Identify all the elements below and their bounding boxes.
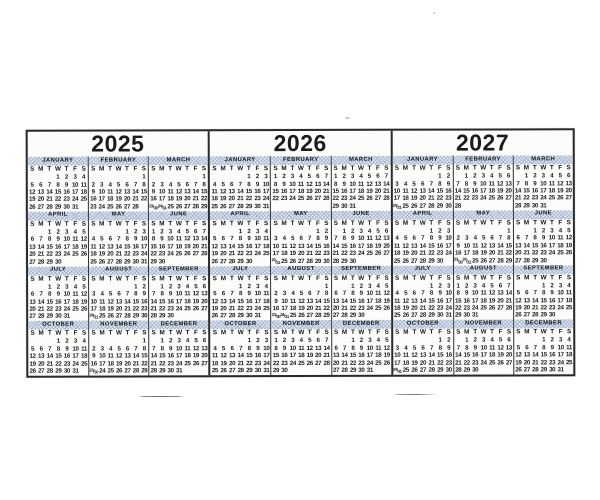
date-cell: 26 — [114, 204, 122, 210]
date-cell: 16 — [436, 298, 445, 304]
date-cell: 25 — [374, 306, 382, 312]
date-cell: 4 — [71, 229, 80, 235]
date-cell: 10 — [392, 189, 401, 195]
date-cell: 22 — [54, 361, 63, 367]
weekday-label: W — [479, 166, 487, 172]
weekday-label: T — [166, 221, 174, 227]
date-cell: 24 — [539, 196, 547, 202]
date-cell: 28 — [149, 314, 157, 320]
weekday-label: S — [514, 220, 522, 226]
date-cell: 3 — [166, 229, 174, 235]
date-cell: 27 — [123, 369, 131, 375]
date-cell: 2 — [462, 283, 470, 289]
date-cell: 17 — [393, 360, 402, 366]
date-cell: 24/31 — [158, 204, 167, 210]
month-name-label: SEPTEMBER — [149, 266, 208, 275]
date-cell: 29 — [45, 314, 54, 320]
date-cell: 6 — [115, 292, 123, 298]
date-cell: 2 — [454, 236, 463, 242]
date-cell: 12 — [410, 189, 419, 195]
date-cell: 8 — [427, 236, 436, 242]
date-cell: 14 — [522, 243, 530, 249]
date-cell: 20 — [191, 244, 199, 250]
date-cell: 22 — [522, 196, 530, 202]
date-cell: 8 — [331, 181, 339, 187]
date-cell: 27 — [227, 204, 236, 210]
weekday-label: T — [487, 166, 495, 172]
date-cell: 21 — [322, 353, 330, 359]
date-cell: 22 — [123, 252, 131, 258]
date-cell: 12 — [410, 353, 419, 359]
weekday-label: M — [522, 165, 530, 171]
month-april-2027: APRILSMTWTFS1234567891011121314151617181… — [393, 210, 453, 265]
date-cell: 9 — [54, 292, 63, 298]
date-cell: 15 — [435, 189, 444, 195]
date-cell: 12 — [514, 353, 522, 359]
date-cell: 18 — [80, 354, 89, 360]
date-cell: 11 — [79, 182, 88, 188]
date-cell: 11 — [479, 291, 487, 297]
weekday-label: M — [37, 331, 46, 337]
date-cell: 9 — [158, 237, 166, 243]
month-name-label: JUNE — [149, 211, 208, 220]
month-name-label: JANUARY — [392, 156, 452, 165]
date-cell: 30 — [280, 368, 288, 374]
date-cell: 12 — [288, 244, 296, 250]
date-cell: 11 — [297, 346, 305, 352]
date-cell: 3 — [97, 182, 105, 188]
date-cell: 23 — [62, 197, 71, 203]
date-cell: 4 — [297, 338, 305, 344]
date-cell: 25 — [262, 251, 271, 257]
date-grid: 1234567891011121314151617181920212223242… — [28, 174, 88, 211]
date-cell: 25 — [166, 204, 174, 210]
date-cell: 2 — [471, 338, 479, 344]
weekday-label: S — [28, 331, 37, 337]
weekday-label: S — [140, 221, 148, 227]
date-cell: 18 — [297, 189, 305, 195]
year-label: 2027 — [392, 130, 572, 155]
month-november-2027: NOVEMBERSMTWTFS1234567891011121314151617… — [453, 320, 513, 375]
weekday-label: S — [28, 167, 37, 173]
month-june-2026: JUNESMTWTFS12345678910111213141516171819… — [330, 211, 390, 266]
weekday-label: W — [539, 275, 547, 281]
date-cell: 26 — [80, 252, 89, 258]
weekday-label: M — [523, 330, 531, 336]
date-cell: 12 — [114, 189, 122, 195]
date-cell: 12 — [488, 291, 496, 297]
date-cell: 15 — [158, 299, 166, 305]
date-cell: 1 — [54, 339, 63, 345]
date-cell: 5 — [479, 236, 487, 242]
date-cell: 17 — [289, 353, 297, 359]
date-cell: 16 — [245, 299, 254, 305]
date-cell: 25 — [565, 360, 573, 366]
date-cell: 29 — [245, 368, 254, 374]
date-cell: 7 — [227, 236, 236, 242]
date-cell: 3 — [539, 173, 547, 179]
date-cell: 21 — [37, 252, 46, 258]
weekday-label: T — [470, 166, 478, 172]
weekday-label: W — [114, 221, 122, 227]
date-cell: 17 — [556, 353, 564, 359]
weekday-label: T — [531, 330, 539, 336]
date-cell: 20 — [418, 196, 427, 202]
date-cell: 15 — [200, 189, 208, 195]
date-cell: 22 — [462, 360, 470, 366]
date-cell: 14 — [531, 298, 539, 304]
date-cell: 16 — [539, 243, 547, 249]
date-cell: 2 — [89, 182, 97, 188]
weekday-label: M — [280, 330, 288, 336]
date-cell: 26 — [556, 196, 564, 202]
date-cell: 20 — [228, 361, 237, 367]
weekday-label: S — [200, 331, 208, 337]
date-cell: 17 — [548, 243, 556, 249]
date-cell: 31 — [262, 204, 271, 210]
weekday-label: F — [191, 166, 199, 172]
date-cell: 1 — [123, 229, 131, 235]
weekday-label: F — [496, 275, 504, 281]
date-cell: 25 — [402, 368, 411, 374]
weekday-label: S — [444, 220, 453, 226]
weekday-label: F — [132, 331, 140, 337]
month-may-2026: MAYSMTWTFS123456789101112131415161718192… — [270, 211, 330, 266]
weekday-label: T — [305, 330, 313, 336]
date-cell: 5 — [297, 291, 305, 297]
weekday-label: S — [89, 221, 97, 227]
weekday-label: M — [340, 166, 348, 172]
date-cell: 13 — [183, 189, 191, 195]
date-cell: 20 — [410, 306, 419, 312]
date-cell: 11 — [280, 244, 288, 250]
date-cell: 5 — [115, 346, 123, 352]
weekday-label: M — [522, 220, 530, 226]
date-cell: 19 — [219, 361, 228, 367]
date-cell: 7 — [191, 182, 199, 188]
date-cell: 18 — [89, 252, 97, 258]
date-cell: 8 — [54, 346, 63, 352]
date-cell: 14 — [340, 353, 348, 359]
date-cell: 11 — [262, 291, 271, 297]
date-grid: 1234567891011121314151617181920212223242… — [28, 229, 88, 266]
date-cell: 25 — [210, 204, 219, 210]
date-cell: 14 — [45, 190, 54, 196]
weekday-label: F — [496, 220, 504, 226]
folded-date-bottom: 31 — [162, 205, 166, 210]
date-cell: 10 — [253, 236, 262, 242]
date-cell: 8 — [462, 181, 470, 187]
weekday-label: T — [427, 220, 436, 226]
date-cell: 18 — [210, 197, 219, 203]
date-cell: 2 — [245, 229, 254, 235]
date-cell: 21 — [228, 306, 237, 312]
date-cell: 13 — [123, 189, 131, 195]
date-cell: 16 — [245, 244, 254, 250]
date-cell: 17 — [479, 353, 487, 359]
date-cell: 9 — [444, 345, 453, 351]
date-cell: 11 — [183, 346, 191, 352]
date-cell: 19 — [565, 243, 573, 249]
weekday-label: S — [211, 331, 220, 337]
date-cell: 25 — [487, 196, 495, 202]
date-cell: 11 — [374, 346, 382, 352]
date-cell: 6 — [505, 338, 513, 344]
date-cell: 14 — [114, 244, 122, 250]
date-cell: 1 — [45, 230, 54, 236]
date-cell: 12 — [80, 292, 89, 298]
date-cell: 25 — [183, 361, 191, 367]
weekday-label: T — [45, 276, 54, 282]
date-cell: 11 — [71, 237, 80, 243]
date-cell: 2 — [444, 338, 453, 344]
date-cell: 30 — [140, 314, 148, 320]
folded-date-top: 23 — [89, 368, 93, 373]
date-cell: 24 — [366, 361, 374, 367]
date-cell: 14 — [123, 299, 131, 305]
date-cell: 18 — [488, 353, 496, 359]
date-cell: 6 — [297, 236, 305, 242]
weekday-label: T — [488, 275, 496, 281]
date-cell: 16 — [140, 299, 148, 305]
date-cell: 14 — [200, 237, 208, 243]
date-cell: 6 — [514, 236, 522, 242]
date-cell: 23 — [89, 204, 97, 210]
date-cell: 12 — [564, 236, 572, 242]
date-cell: 3 — [462, 236, 471, 242]
date-cell: 10 — [548, 236, 556, 242]
date-cell: 6 — [28, 292, 37, 298]
weekday-header: SMTWTFS — [211, 329, 271, 338]
date-cell: 6 — [488, 236, 496, 242]
weekday-label: S — [444, 166, 453, 172]
weekday-label: W — [357, 330, 365, 336]
date-cell: 29 — [140, 369, 148, 375]
date-cell: 11 — [488, 345, 496, 351]
folded-date-top: 24 — [271, 258, 275, 263]
date-cell: 3 — [98, 346, 106, 352]
date-cell: 13 — [419, 353, 428, 359]
weekday-label: S — [149, 331, 157, 337]
weekday-label: S — [322, 330, 330, 336]
date-cell: 13 — [219, 244, 228, 250]
weekday-label: W — [54, 167, 63, 173]
date-cell: 11 — [565, 345, 573, 351]
date-grid: 1234567891011121314151617181920212223242… — [331, 228, 390, 265]
date-cell: 11 — [547, 181, 555, 187]
date-cell: 4 — [262, 284, 271, 290]
date-cell: 8 — [236, 236, 245, 242]
date-cell: 23 — [436, 306, 445, 312]
date-cell: 8 — [131, 291, 139, 297]
date-cell: 27 — [200, 306, 208, 312]
date-cell: 6 — [106, 237, 114, 243]
date-cell: 12 — [382, 346, 390, 352]
weekday-label: M — [219, 221, 228, 227]
date-cell: 17 — [366, 353, 374, 359]
date-cell: 18 — [106, 197, 114, 203]
weekday-label: S — [210, 276, 219, 282]
weekday-label: M — [462, 330, 470, 336]
date-cell: 15 — [531, 243, 539, 249]
date-cell: 9 — [444, 181, 453, 187]
month-name-label: AUGUST — [89, 266, 148, 275]
date-cell: 30 — [357, 313, 365, 319]
date-cell: 28 — [454, 368, 462, 374]
date-cell: 4 — [106, 182, 114, 188]
month-march-2026: MARCHSMTWTFS1234567891011121314151617181… — [330, 156, 390, 211]
weekday-label: S — [454, 166, 462, 172]
date-cell: 15 — [454, 298, 462, 304]
weekday-label: F — [556, 165, 564, 171]
date-cell: 9 — [357, 291, 365, 297]
date-cell: 20 — [419, 360, 428, 366]
date-cell: 11 — [393, 298, 402, 304]
date-cell: 2 — [539, 228, 547, 234]
date-cell: 9 — [539, 236, 547, 242]
weekday-label: S — [149, 276, 157, 282]
date-cell: 6 — [332, 291, 340, 297]
date-cell: 21 — [427, 196, 436, 202]
date-cell: 1 — [427, 283, 436, 289]
weekday-label: F — [313, 166, 321, 172]
date-cell: 5 — [192, 284, 200, 290]
month-name-label: NOVEMBER — [272, 320, 331, 329]
date-cell: 7 — [236, 182, 245, 188]
date-cell: 16 — [131, 244, 139, 250]
date-cell: 9 — [89, 354, 98, 360]
date-cell: 9 — [149, 189, 158, 195]
date-cell: 19 — [479, 251, 487, 257]
date-cell: 30 — [357, 368, 365, 374]
weekday-label: S — [79, 221, 88, 227]
weekday-label: S — [332, 275, 340, 281]
date-cell: 28 — [314, 313, 322, 319]
date-cell: 14 — [227, 244, 236, 250]
date-cell: 4 — [166, 182, 174, 188]
date-cell: 29 — [436, 368, 445, 374]
date-cell: 16 — [89, 361, 98, 367]
date-cell: 14 — [322, 346, 330, 352]
date-cell: 2 — [357, 283, 365, 289]
date-cell: 4 — [374, 338, 382, 344]
date-cell: 14 — [427, 353, 436, 359]
date-cell: 22 — [272, 361, 280, 367]
date-cell: 4 — [374, 283, 382, 289]
date-cell: 19 — [496, 353, 504, 359]
weekday-label: S — [393, 330, 402, 336]
date-cell: 20 — [36, 197, 45, 203]
date-cell: 2 — [357, 338, 365, 344]
date-cell: 21 — [496, 251, 504, 257]
date-cell: 26 — [297, 313, 305, 319]
date-cell: 3 — [262, 338, 271, 344]
date-cell: 27 — [410, 258, 419, 264]
date-cell: 21 — [191, 197, 199, 203]
date-cell: 29 — [427, 313, 436, 319]
month-august-2026: AUGUSTSMTWTFS123456789101112131415161718… — [270, 265, 330, 320]
date-cell: 6 — [219, 291, 228, 297]
month-name-label: JULY — [28, 266, 88, 275]
weekday-label: M — [401, 330, 410, 336]
three-year-calendar: 2025JANUARYSMTWTFS1234567891011121314151… — [26, 128, 576, 377]
date-cell: 15 — [158, 354, 166, 360]
date-grid: 1234567891011121314151617181920212223242… — [332, 283, 391, 320]
date-cell: 22 — [200, 197, 208, 203]
date-cell: 5 — [219, 182, 228, 188]
date-cell: 19 — [192, 354, 200, 360]
date-cell: 23 — [131, 252, 139, 258]
date-cell: 9 — [280, 182, 288, 188]
date-cell: 28 — [332, 259, 340, 265]
date-cell: 21 — [522, 251, 530, 257]
date-cell: 5 — [28, 182, 37, 188]
date-cell: 16 — [340, 189, 348, 195]
date-cell: 16 — [89, 197, 97, 203]
date-cell: 24 — [71, 197, 80, 203]
weekday-label: T — [62, 276, 71, 282]
date-cell: 3 — [556, 338, 564, 344]
date-cell: 25 — [175, 252, 183, 258]
weekday-label: S — [514, 330, 522, 336]
date-cell: 2 — [54, 229, 63, 235]
date-cell: 26 — [382, 360, 390, 366]
date-cell: 26 — [401, 258, 410, 264]
date-cell: 30 — [245, 314, 254, 320]
date-cell: 20 — [200, 299, 208, 305]
date-cell: 20 — [28, 252, 37, 258]
date-cell: 22 — [45, 252, 54, 258]
date-cell: 25 — [374, 361, 382, 367]
date-cell: 4 — [393, 236, 402, 242]
date-cell: 4 — [565, 338, 573, 344]
date-cell: 2 — [62, 175, 71, 181]
date-cell: 13 — [314, 346, 322, 352]
date-cell: 6 — [374, 174, 382, 180]
year-label: 2025 — [28, 131, 208, 156]
date-cell: 17 — [444, 298, 453, 304]
date-cell: 30 — [462, 313, 470, 319]
date-cell: 1 — [272, 338, 280, 344]
weekday-label: F — [71, 167, 80, 173]
weekday-label: M — [36, 222, 45, 228]
date-cell: 16 — [548, 298, 556, 304]
date-cell: 27 — [228, 368, 237, 374]
date-cell: 9 — [471, 345, 479, 351]
date-cell: 11 — [89, 244, 97, 250]
date-cell: 18 — [471, 251, 479, 257]
date-cell: 6 — [522, 290, 530, 296]
date-cell: 18 — [393, 251, 402, 257]
date-cell: 31 — [556, 367, 564, 373]
weekday-label: M — [219, 166, 228, 172]
month-april-2026: APRILSMTWTFS1234567891011121314151617181… — [210, 211, 270, 266]
date-cell: 11 — [556, 236, 564, 242]
date-cell: 23 — [539, 251, 547, 257]
date-cell: 18 — [547, 188, 555, 194]
date-cell: 2 — [548, 283, 556, 289]
date-cell: 19 — [210, 306, 219, 312]
weekday-label: W — [236, 166, 245, 172]
weekday-header: SMTWTFS — [210, 275, 270, 284]
date-cell: 4 — [297, 174, 305, 180]
weekday-header: SMTWTFS — [89, 165, 148, 174]
date-cell: 1 — [462, 338, 470, 344]
date-cell: 21 — [150, 361, 158, 367]
weekday-label: W — [297, 221, 305, 227]
date-cell: 16 — [548, 353, 556, 359]
date-cell: 24 — [97, 204, 105, 210]
